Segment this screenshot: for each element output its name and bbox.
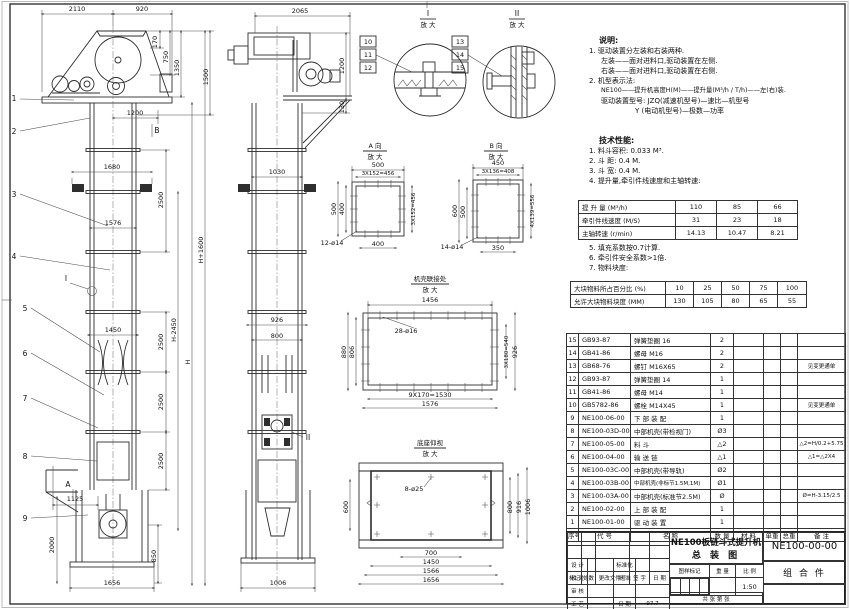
sheet-count: 共 张 第 张: [669, 592, 763, 605]
cell: 14.13: [676, 227, 717, 240]
shell-view-subtitle: 放 大: [422, 285, 438, 294]
bolt-holes: [374, 474, 488, 537]
stamp-header: 比 例: [736, 565, 764, 578]
title-date: 97.7: [636, 598, 670, 609]
tech-line: 5. 填充系数按0.7计算.: [575, 243, 843, 253]
signature-table: 设 计 标准化 校 对 批 准 审 核 工 艺 日 期 97.7: [567, 558, 670, 609]
dim-label: 4X139=556: [530, 194, 536, 227]
dim-label: 130: [338, 101, 346, 113]
holes-label: 8-ø25: [405, 485, 424, 493]
bom-no: 1: [567, 516, 579, 529]
tech-section-2: 5. 填充系数按0.7计算. 6. 牵引件安全系数>1倍. 7. 物料块度:: [575, 243, 843, 273]
detail-ii-mark: II: [306, 433, 310, 442]
cell: 105: [694, 295, 722, 308]
balloon-9: 9: [23, 514, 28, 523]
bom-code: NE100-03A-00: [579, 490, 631, 503]
bom-qty: 1: [711, 503, 734, 516]
bom-code: GB68-76: [579, 360, 631, 373]
signature-row: 设 计 标准化: [568, 559, 670, 572]
dim-label: 2000: [48, 537, 56, 554]
view-a-title: A 向: [368, 141, 381, 150]
section-b-label: B: [154, 126, 159, 135]
bom-remark: [798, 503, 846, 516]
cell: 66: [758, 201, 798, 214]
base-view-title: 底座仰视: [417, 438, 444, 447]
note-line: 1. 驱动装置分左装和右装两种.: [575, 46, 843, 56]
view-b: B 向 放 大 450 3X136=408 600 500 4X139=556 …: [441, 141, 536, 252]
dim-label: 500: [330, 203, 338, 215]
bom-name: 下 部 装 配: [631, 412, 711, 425]
bom-name: 螺栓 M14X45: [631, 399, 711, 412]
tech-line: 6. 牵引件安全系数>1倍.: [575, 253, 843, 263]
bom-no: 4: [567, 477, 579, 490]
view-a: A 向 放 大 500 3X152=456 500 400 3X152=456 …: [321, 141, 417, 248]
bom-no: 3: [567, 490, 579, 503]
view-b-title: B 向: [489, 141, 502, 150]
side-view-dimensions: 2065 1200 130 1030 926 800 1006 II: [241, 7, 352, 592]
detail-ii-view: II 放 大 13 14 15: [452, 9, 555, 118]
balloon-14: 14: [456, 51, 464, 59]
sig-label: 校 对: [568, 572, 588, 585]
drawing-title-box: NE100板链斗式提升机 总 装 图: [669, 532, 763, 564]
bom-name: 料 斗: [631, 438, 711, 451]
base-bottom-view: 底座仰视 放 大 8-ø25 600 800 916 1006 700 1450…: [342, 438, 532, 584]
speed-table: 提 升 量 (M³/h) 110 85 66 牵引件线速度 (M/S) 31 2…: [578, 200, 798, 240]
cell: 31: [676, 214, 717, 227]
dim-label: 1566: [423, 567, 440, 575]
bom-row: 10GB5782-86螺栓 M14X451见变更通单: [567, 399, 846, 412]
bom-name: 驱 动 装 置: [631, 516, 711, 529]
dim-label: 1350: [173, 60, 181, 77]
dim-label: 9X170=1530: [409, 391, 452, 399]
table-row: 允许大块物料块度 (MM) 130 105 80 65 55: [571, 295, 807, 308]
dim-label: 2500: [157, 394, 165, 411]
section-a-label: A: [65, 480, 71, 489]
dim-label: 920: [136, 5, 148, 13]
bom-no: 12: [567, 373, 579, 386]
dim-label: 1125: [67, 495, 84, 503]
balloon-10: 10: [364, 38, 372, 46]
balloon-6: 6: [23, 349, 28, 358]
bom-qty: 2: [711, 360, 734, 373]
bom-name: 中部机壳(带检视门): [631, 425, 711, 438]
dim-label: 800: [271, 332, 283, 340]
revision-row: [568, 533, 670, 546]
table-row: 提 升 量 (M³/h) 110 85 66: [579, 201, 798, 214]
bom-qty: △2: [711, 438, 734, 451]
cell: 80: [722, 295, 750, 308]
dim-label: 1500: [202, 69, 210, 86]
dim-label: 880: [340, 346, 348, 358]
bom-no: 5: [567, 464, 579, 477]
note-line: 2. 机型表示法:: [575, 76, 843, 86]
cell: 大块物料所占百分比 (%): [571, 282, 666, 295]
dim-label: 3X152=456: [411, 192, 417, 225]
bom-qty: Ø: [711, 490, 734, 503]
bom-name: 中部机壳(标准节2.5M): [631, 490, 711, 503]
note-line: 左装——面对进料口,驱动装置在左侧.: [575, 56, 843, 66]
bom-code: NE100-03D-00: [579, 425, 631, 438]
bom-row: 2NE100-02-00上 部 装 配1: [567, 503, 846, 516]
stamp-header: 图样标记: [670, 565, 710, 578]
bom-name: 螺钉 M16X65: [631, 360, 711, 373]
tech-line: 3. 斗 宽: 0.4 M.: [575, 166, 843, 176]
cell: 25: [694, 282, 722, 295]
cell: 75: [750, 282, 778, 295]
bom-code: NE100-04-00: [579, 451, 631, 464]
bom-row: 7NE100-05-00料 斗△2△2=H/0.2+5.75: [567, 438, 846, 451]
bom-no: 7: [567, 438, 579, 451]
bom-remark: [798, 412, 846, 425]
dim-label: 926: [511, 346, 519, 358]
balloon-12: 12: [364, 64, 372, 72]
dim-label: 3X152=456: [362, 171, 395, 177]
bom-qty: 1: [711, 373, 734, 386]
dim-label: 800: [506, 501, 514, 513]
sig-label: [614, 585, 636, 598]
bom-row: 3NE100-03A-00中部机壳(标准节2.5M)ØØ=H-3.15/2.5: [567, 490, 846, 503]
dim-label: 700: [425, 549, 437, 557]
bom-no: 14: [567, 347, 579, 360]
sig-label: 设 计: [568, 559, 588, 572]
cell: 55: [778, 295, 807, 308]
tech-line: 2. 斗 距: 0.4 M.: [575, 156, 843, 166]
front-view-geometry: [42, 26, 172, 588]
bom-no: 6: [567, 451, 579, 464]
dim-label: 1450: [423, 558, 440, 566]
tech-line: 1. 料斗容积: 0.033 M³.: [575, 146, 843, 156]
shell-view-title: 机壳联接处: [414, 274, 447, 283]
balloon-11: 11: [364, 51, 372, 59]
bom-row: 6NE100-04-00输 送 链△1△1=△2X4: [567, 451, 846, 464]
detail-i-title: I: [427, 9, 429, 18]
dim-label: 170: [151, 36, 159, 48]
dim-label: 850: [150, 550, 158, 562]
cell: 允许大块物料块度 (MM): [571, 295, 666, 308]
cell: 100: [778, 282, 807, 295]
note-line: 右装——面对进料口,驱动装置在右侧.: [575, 66, 843, 76]
front-view-balloons: 1 2 3 4 I 5 6 7 8 9: [12, 94, 110, 523]
balloon-15: 15: [456, 64, 464, 72]
dim-label: 1576: [422, 400, 439, 408]
bom-qty: 2: [711, 347, 734, 360]
dim-label: 2110: [69, 5, 86, 13]
bom-code: GB93-87: [579, 334, 631, 347]
dim-label: 1656: [104, 579, 121, 587]
tech-line: 7. 物料块度:: [575, 263, 843, 273]
bom-remark: [798, 347, 846, 360]
note-line: 驱动装置型号: JZQ(减速机型号)—速比—机型号: [575, 96, 843, 106]
dim-label: 1680: [104, 163, 121, 171]
holes-label: 12-ø14: [321, 239, 344, 247]
bom-row: 5NE100-03C-00中部机壳(带导轨)Ø2: [567, 464, 846, 477]
bom-no: 10: [567, 399, 579, 412]
balloon-5: 5: [23, 304, 28, 313]
dim-label: 500: [372, 161, 384, 169]
drawing-sheet: 2110 920 170 750 1350 1500 1200 B 1680 1…: [0, 0, 850, 609]
balloon-2: 2: [12, 127, 17, 136]
bom-remark: [798, 477, 846, 490]
bom-no: 11: [567, 386, 579, 399]
cell: 牵引件线速度 (M/S): [579, 214, 676, 227]
bom-name: 上 部 装 配: [631, 503, 711, 516]
title-block: 标记 处数 更改文件号 签 字 日 期 设 计 标准化 校 对 批 准 审 核: [566, 531, 845, 604]
bom-row: 9NE100-06-00下 部 装 配1: [567, 412, 846, 425]
dim-label: 450: [492, 159, 504, 167]
notes-heading: 说明:: [575, 36, 843, 46]
note-line: Y (电动机型号)—极数—功率: [575, 106, 843, 116]
bom-qty: 1: [711, 516, 734, 529]
cell: 10: [666, 282, 694, 295]
bom-table: 15GB93-87弹簧垫圈 162 14GB41-86螺母 M162 13GB6…: [566, 333, 846, 542]
bom-name: 弹簧垫圈 14: [631, 373, 711, 386]
bom-row: 11GB41-86螺母 M141: [567, 386, 846, 399]
bom-name: 弹簧垫圈 16: [631, 334, 711, 347]
dim-label: 1006: [524, 499, 532, 516]
revision-row: [568, 546, 670, 559]
bom-row: 13GB68-76螺钉 M16X652见变更通单: [567, 360, 846, 373]
bom-remark: △2=H/0.2+5.75: [798, 438, 846, 451]
dim-label: 1450: [105, 326, 122, 334]
detail-ii-title: II: [515, 9, 519, 18]
table-row: 牵引件线速度 (M/S) 31 23 18: [579, 214, 798, 227]
bom-row: 14GB41-86螺母 M162: [567, 347, 846, 360]
signature-row: 工 艺 日 期 97.7: [568, 598, 670, 609]
bom-code: NE100-03C-00: [579, 464, 631, 477]
sig-label: 审 核: [568, 585, 588, 598]
holes-label: 14-ø14: [441, 243, 464, 251]
dim-label: 400: [338, 203, 346, 215]
bom-code: NE100-02-00: [579, 503, 631, 516]
dim-label: 350: [492, 244, 504, 252]
cell: 主轴转速 (r/min): [579, 227, 676, 240]
notes-section: 说明: 1. 驱动装置分左装和右装两种. 左装——面对进料口,驱动装置在左侧. …: [575, 36, 843, 116]
bom-remark: [798, 334, 846, 347]
dim-label: 1456: [422, 296, 439, 304]
dim-label: 1200: [338, 58, 346, 75]
bom-name: 中部机壳(带导轨): [631, 464, 711, 477]
dim-label: 1030: [269, 168, 286, 176]
cell: 23: [717, 214, 758, 227]
product-name: NE100板链斗式提升机: [671, 536, 761, 548]
cell: 65: [750, 295, 778, 308]
bom-no: 15: [567, 334, 579, 347]
note-line: NE100——提升机高度H(M)——提升量(M³/h / T/h)——左(右)装…: [575, 86, 843, 96]
dim-label: H+1600: [197, 237, 205, 264]
sheet-name: 总 装 图: [692, 548, 740, 561]
side-view-geometry: [228, 26, 352, 588]
bom-code: GB5782-86: [579, 399, 631, 412]
balloon-7: 7: [23, 394, 28, 403]
part-category: 组 合 件: [763, 561, 846, 584]
bom-remark: 见变更通单: [798, 399, 846, 412]
view-a-subtitle: 放 大: [367, 152, 383, 161]
bom-code: NE100-03B-00: [579, 477, 631, 490]
bom-qty: Ø2: [711, 464, 734, 477]
sig-label: 日 期: [614, 598, 636, 609]
bom-row: 15GB93-87弹簧垫圈 162: [567, 334, 846, 347]
dim-label: 2065: [292, 7, 309, 15]
sig-label: 工 艺: [568, 598, 588, 609]
dim-label: 806: [348, 346, 356, 358]
spare-box: [763, 584, 846, 605]
bom-code: GB41-86: [579, 347, 631, 360]
signature-row: 审 核: [568, 585, 670, 598]
lump-size-table: 大块物料所占百分比 (%) 10 25 50 75 100 允许大块物料块度 (…: [570, 281, 807, 308]
shell-joint-view: 机壳联接处 放 大 1456 28-ø16 880 806 3X180=540 …: [340, 274, 519, 408]
bom-qty: Ø3: [711, 425, 734, 438]
dim-label: H-2450: [170, 318, 178, 342]
cell: 10.47: [717, 227, 758, 240]
dim-label: 400: [372, 240, 384, 248]
dim-label: 600: [451, 205, 459, 217]
drawing-number: NE100-00-00: [763, 532, 846, 561]
cell: 110: [676, 201, 717, 214]
bom-qty: 1: [711, 399, 734, 412]
bom-remark: 见变更通单: [798, 360, 846, 373]
stamp-header: 重 量: [710, 565, 736, 578]
balloon-8: 8: [23, 452, 28, 461]
dim-label: H: [184, 359, 192, 364]
bom-row: 12GB93-87弹簧垫圈 141: [567, 373, 846, 386]
bom-row: 1NE100-01-00驱 动 装 置1: [567, 516, 846, 529]
detail-i-subtitle: 放 大: [420, 20, 436, 29]
dim-label: 1200: [127, 109, 144, 117]
bom-remark: [798, 464, 846, 477]
dim-label: 1006: [270, 579, 287, 587]
bom-row: 8NE100-03D-00中部机壳(带检视门)Ø3: [567, 425, 846, 438]
bom-code: GB41-86: [579, 386, 631, 399]
bom-name: 螺母 M14: [631, 386, 711, 399]
bom-qty: Ø1: [711, 477, 734, 490]
bom-remark: Ø=H-3.15/2.5: [798, 490, 846, 503]
bom-name: 中部机壳(非标节1.5M,1M): [631, 477, 711, 490]
bom-name: 螺母 M16: [631, 347, 711, 360]
holes-label: 28-ø16: [395, 327, 418, 335]
bom-row: 4NE100-03B-00中部机壳(非标节1.5M,1M)Ø1: [567, 477, 846, 490]
bom-no: 9: [567, 412, 579, 425]
table-row: 大块物料所占百分比 (%) 10 25 50 75 100: [571, 282, 807, 295]
cell: 18: [758, 214, 798, 227]
stamp-header-row: 图样标记 重 量 比 例: [670, 565, 764, 578]
balloon-13: 13: [456, 38, 464, 46]
dim-label: 2500: [157, 192, 165, 209]
bom-qty: △1: [711, 451, 734, 464]
cell: 130: [666, 295, 694, 308]
detail-ii-subtitle: 放 大: [509, 20, 525, 29]
cell: 提 升 量 (M³/h): [579, 201, 676, 214]
bom-no: 13: [567, 360, 579, 373]
signature-row: 校 对 批 准: [568, 572, 670, 585]
tech-heading: 技术性能:: [575, 136, 843, 146]
tech-section: 技术性能: 1. 料斗容积: 0.033 M³. 2. 斗 距: 0.4 M. …: [575, 136, 843, 186]
bom-code: NE100-05-00: [579, 438, 631, 451]
bom-remark: [798, 373, 846, 386]
cell: 8.21: [758, 227, 798, 240]
bom-qty: 1: [711, 412, 734, 425]
bom-name: 输 送 链: [631, 451, 711, 464]
dim-label: 3X136=408: [482, 169, 515, 175]
dim-label: 500: [459, 206, 467, 218]
dim-label: 1656: [423, 576, 440, 584]
dim-label: 926: [271, 316, 283, 324]
dim-label: 2500: [157, 334, 165, 351]
table-row: 主轴转速 (r/min) 14.13 10.47 8.21: [579, 227, 798, 240]
balloon-1: 1: [12, 94, 17, 103]
bom-qty: 1: [711, 386, 734, 399]
bom-code: GB93-87: [579, 373, 631, 386]
bom-code: NE100-06-00: [579, 412, 631, 425]
bom-no: 2: [567, 503, 579, 516]
dim-label: 916: [515, 501, 523, 513]
dim-label: 600: [342, 501, 350, 513]
bom-remark: [798, 516, 846, 529]
detail-i-mark: I: [65, 274, 67, 283]
bom-code: NE100-01-00: [579, 516, 631, 529]
dim-label: 2500: [157, 453, 165, 470]
bom-remark: △1=△2X4: [798, 451, 846, 464]
tech-line: 4. 提升量,牵引件线速度和主轴转速:: [575, 176, 843, 186]
detail-i-view: I 放 大 10 11 12: [360, 9, 466, 116]
balloon-3: 3: [12, 190, 17, 199]
sig-label: 批 准: [614, 572, 636, 585]
dim-label: 3X180=540: [504, 335, 510, 368]
bom-qty: 2: [711, 334, 734, 347]
sig-label: 标准化: [614, 559, 636, 572]
cell: 50: [722, 282, 750, 295]
dim-label: 750: [162, 51, 170, 63]
bom-remark: [798, 425, 846, 438]
base-view-subtitle: 放 大: [422, 449, 438, 458]
bom-remark: [798, 386, 846, 399]
balloon-4: 4: [12, 252, 17, 261]
bom-no: 8: [567, 425, 579, 438]
cell: 85: [717, 201, 758, 214]
